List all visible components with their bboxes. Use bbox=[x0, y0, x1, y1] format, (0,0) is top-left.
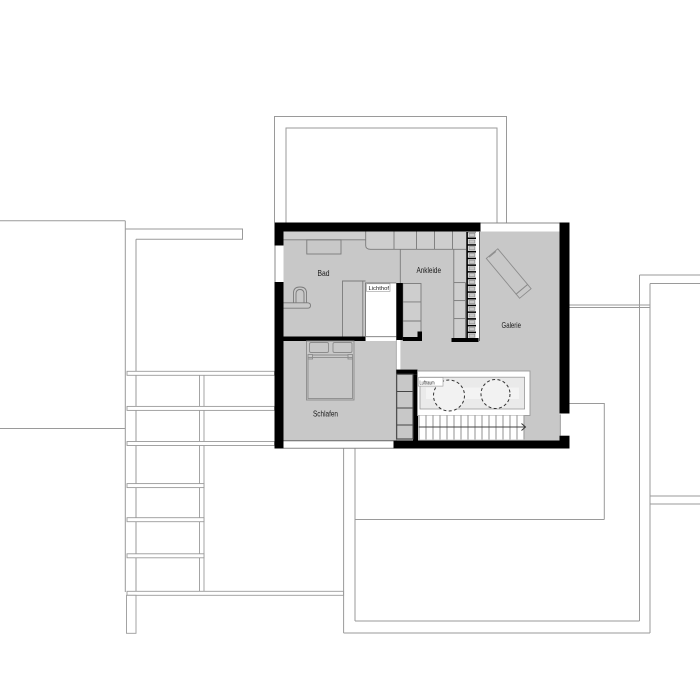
svg-text:Galerie: Galerie bbox=[502, 321, 522, 330]
svg-text:Lichthof: Lichthof bbox=[369, 286, 390, 292]
svg-text:Ankleide: Ankleide bbox=[417, 266, 442, 275]
svg-text:Schlafen: Schlafen bbox=[313, 410, 338, 419]
svg-text:Luftraum: Luftraum bbox=[420, 380, 435, 386]
svg-text:Bad: Bad bbox=[318, 269, 330, 278]
